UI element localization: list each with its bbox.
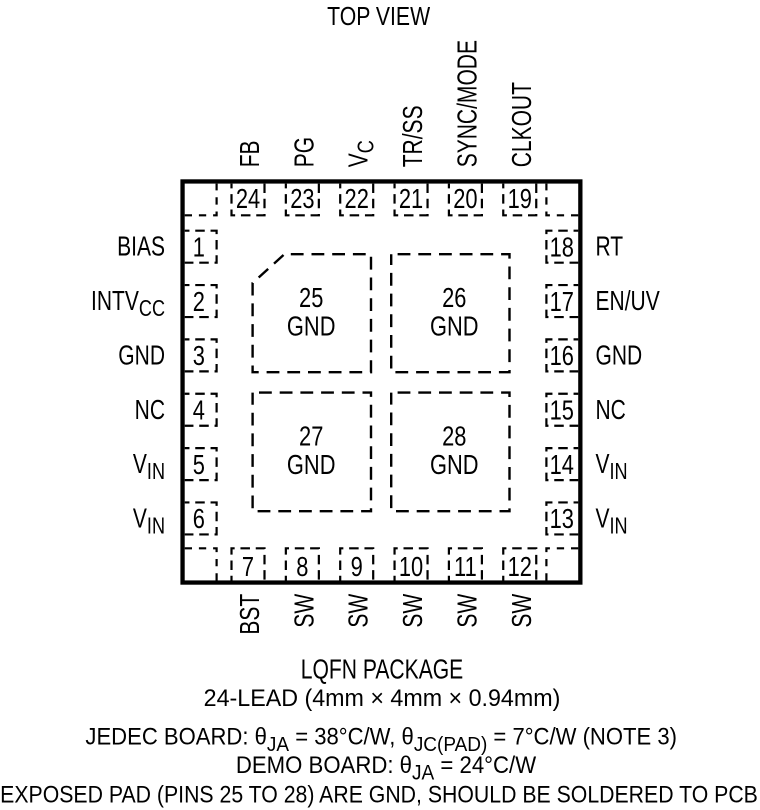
svg-text:EN/UV: EN/UV	[596, 287, 661, 317]
svg-text:LQFN PACKAGE: LQFN PACKAGE	[301, 655, 463, 685]
svg-text:18: 18	[550, 232, 574, 263]
svg-text:25: 25	[299, 282, 323, 313]
svg-text:TR/SS: TR/SS	[399, 105, 429, 167]
svg-text:SW: SW	[453, 594, 483, 628]
svg-text:3: 3	[193, 341, 205, 372]
svg-text:17: 17	[550, 286, 574, 317]
svg-text:13: 13	[550, 504, 574, 535]
svg-text:12: 12	[508, 551, 532, 582]
svg-text:TOP VIEW: TOP VIEW	[327, 3, 431, 31]
svg-text:VIN: VIN	[133, 504, 165, 539]
svg-text:GND: GND	[118, 341, 165, 371]
svg-text:PG: PG	[290, 137, 320, 167]
svg-text:26: 26	[442, 282, 466, 313]
svg-text:EXPOSED PAD (PINS 25 TO 28) AR: EXPOSED PAD (PINS 25 TO 28) ARE GND, SHO…	[0, 780, 758, 808]
svg-text:BST: BST	[235, 594, 265, 635]
svg-text:22: 22	[345, 183, 369, 214]
svg-text:7: 7	[242, 551, 254, 582]
svg-text:SW: SW	[507, 594, 537, 628]
svg-text:6: 6	[193, 504, 205, 535]
svg-text:8: 8	[296, 551, 308, 582]
svg-text:VIN: VIN	[133, 450, 165, 485]
svg-text:GND: GND	[430, 449, 479, 480]
svg-text:11: 11	[454, 551, 477, 582]
svg-text:SW: SW	[290, 594, 320, 628]
svg-text:27: 27	[299, 421, 323, 452]
svg-text:2: 2	[193, 286, 205, 317]
svg-text:1: 1	[193, 232, 205, 263]
svg-text:10: 10	[399, 551, 423, 582]
svg-text:GND: GND	[430, 311, 479, 342]
svg-text:23: 23	[290, 183, 314, 214]
svg-text:VIN: VIN	[596, 504, 628, 539]
svg-text:14: 14	[550, 449, 574, 480]
svg-text:SW: SW	[344, 594, 374, 628]
svg-text:GND: GND	[287, 449, 336, 480]
svg-text:SW: SW	[399, 594, 429, 628]
svg-text:NC: NC	[135, 395, 165, 425]
svg-text:5: 5	[193, 449, 205, 480]
svg-text:9: 9	[351, 551, 363, 582]
svg-text:INTVCC: INTVCC	[91, 287, 165, 322]
svg-text:BIAS: BIAS	[117, 232, 165, 262]
svg-text:24-LEAD (4mm × 4mm × 0.94mm): 24-LEAD (4mm × 4mm × 0.94mm)	[204, 684, 561, 712]
svg-text:GND: GND	[596, 341, 643, 371]
svg-text:28: 28	[442, 421, 466, 452]
svg-text:VC: VC	[344, 140, 379, 167]
svg-text:20: 20	[453, 183, 477, 214]
svg-text:21: 21	[399, 183, 423, 214]
svg-text:19: 19	[508, 183, 532, 214]
svg-text:RT: RT	[596, 232, 624, 262]
svg-text:NC: NC	[596, 395, 626, 425]
svg-text:15: 15	[550, 395, 574, 426]
svg-text:GND: GND	[287, 311, 336, 342]
svg-text:FB: FB	[235, 140, 265, 167]
svg-text:VIN: VIN	[596, 450, 628, 485]
svg-text:16: 16	[550, 341, 574, 372]
svg-text:24: 24	[236, 183, 260, 214]
svg-text:SYNC/MODE: SYNC/MODE	[453, 40, 483, 167]
svg-text:4: 4	[193, 395, 205, 426]
svg-text:CLKOUT: CLKOUT	[507, 82, 537, 167]
